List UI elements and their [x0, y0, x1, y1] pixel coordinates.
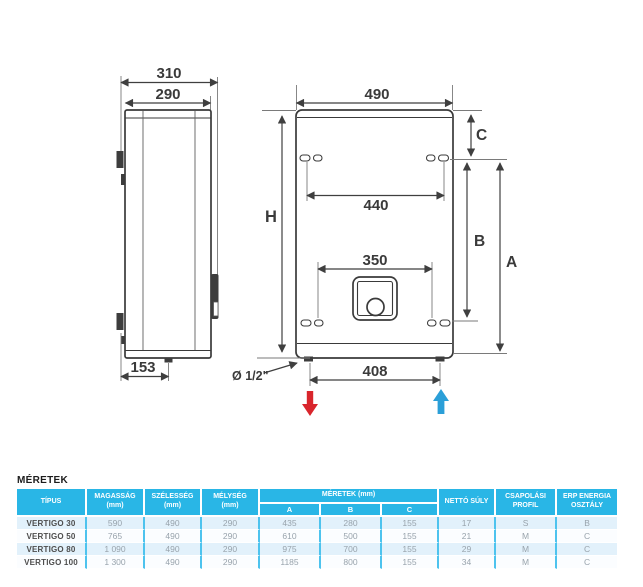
cell-csapolasi: M — [496, 530, 557, 543]
wall-bracket-upper — [117, 151, 124, 168]
front-view: 490 H — [257, 85, 517, 416]
col-header-erp: ERP ENERGIA OSZTÁLY — [557, 489, 617, 517]
dim-panel-span-label: 350 — [362, 252, 387, 269]
header-label: MAGASSÁG — [94, 493, 135, 500]
dim-b-label: B — [474, 233, 485, 250]
mount-slot — [427, 155, 436, 161]
cell-a: 610 — [260, 530, 321, 543]
header-unit: (mm) — [89, 502, 141, 511]
table-row: VERTIGO 30 590 490 290 435 280 155 17 S … — [17, 517, 617, 530]
col-header-b: B — [321, 504, 382, 517]
mount-slot — [439, 155, 449, 161]
cell-netto-suly: 17 — [439, 517, 496, 530]
cell-erp: C — [557, 543, 617, 556]
table-row: VERTIGO 100 1 300 490 290 1185 800 155 3… — [17, 556, 617, 569]
header-label: SZÉLESSÉG — [151, 493, 193, 500]
col-header-netto-suly: NETTÓ SÚLY — [439, 489, 496, 517]
mount-slot — [301, 320, 311, 326]
dim-slot-span-label: 440 — [363, 197, 388, 214]
dim-connection-span-label: 408 — [362, 363, 387, 380]
cell-erp: C — [557, 530, 617, 543]
cell-szelesseg: 490 — [145, 517, 202, 530]
cell-tipus: VERTIGO 30 — [17, 517, 87, 530]
mount-slot — [300, 155, 310, 161]
table-title: MÉRETEK — [17, 475, 618, 486]
col-header-magassag: MAGASSÁG (mm) — [87, 489, 145, 517]
red-down-arrow — [302, 391, 318, 416]
mount-slot — [428, 320, 437, 326]
cell-szelesseg: 490 — [145, 556, 202, 569]
col-header-a: A — [260, 504, 321, 517]
cell-magassag: 765 — [87, 530, 145, 543]
connection-size-label: Ø 1/2" — [232, 369, 269, 383]
cell-a: 435 — [260, 517, 321, 530]
cell-c: 155 — [382, 556, 439, 569]
dim-c-label: C — [476, 127, 487, 144]
cell-b: 280 — [321, 517, 382, 530]
cell-a: 1185 — [260, 556, 321, 569]
spec-table-section: MÉRETEK TÍPUS MAGASSÁG (mm) SZÉLESSÉG (m… — [17, 475, 618, 569]
cell-magassag: 1 300 — [87, 556, 145, 569]
col-header-szelesseg: SZÉLESSÉG (mm) — [145, 489, 202, 517]
col-header-c: C — [382, 504, 439, 517]
col-header-csapolasi: CSAPOLÁSI PROFIL — [496, 489, 557, 517]
connection-callout: Ø 1/2" — [232, 363, 297, 383]
header-label: MÉLYSÉG — [213, 493, 247, 500]
cell-melyseg: 290 — [202, 556, 260, 569]
mount-slot — [314, 155, 323, 161]
dim-height-label: H — [265, 208, 277, 226]
cell-melyseg: 290 — [202, 530, 260, 543]
cell-magassag: 590 — [87, 517, 145, 530]
dimension-drawing: 310 290 153 Ø 1/2" — [0, 0, 643, 470]
dim-a-label: A — [506, 254, 517, 271]
dim-depth-overall-label: 310 — [156, 65, 181, 82]
wall-bracket-lower — [117, 313, 124, 330]
cell-magassag: 1 090 — [87, 543, 145, 556]
cell-csapolasi: S — [496, 517, 557, 530]
cell-erp: C — [557, 556, 617, 569]
col-header-meretek: MÉRETEK (mm) — [260, 489, 439, 504]
cell-szelesseg: 490 — [145, 543, 202, 556]
cell-c: 155 — [382, 543, 439, 556]
header-unit: (mm) — [147, 502, 198, 511]
blue-up-arrow — [433, 389, 449, 414]
mount-slot — [315, 320, 324, 326]
side-view: 310 290 153 — [117, 65, 219, 381]
cell-netto-suly: 34 — [439, 556, 496, 569]
cell-erp: B — [557, 517, 617, 530]
callout-arrow — [264, 363, 297, 373]
datasheet-page: 310 290 153 Ø 1/2" — [0, 0, 643, 587]
cell-melyseg: 290 — [202, 517, 260, 530]
cell-tipus: VERTIGO 100 — [17, 556, 87, 569]
cell-netto-suly: 21 — [439, 530, 496, 543]
table-row: VERTIGO 50 765 490 290 610 500 155 21 M … — [17, 530, 617, 543]
cell-b: 500 — [321, 530, 382, 543]
knob-side-profile — [214, 302, 219, 316]
cell-szelesseg: 490 — [145, 530, 202, 543]
cell-tipus: VERTIGO 80 — [17, 543, 87, 556]
cell-csapolasi: M — [496, 556, 557, 569]
cell-b: 700 — [321, 543, 382, 556]
dim-bracket-offset-label: 153 — [130, 359, 155, 376]
spec-table: TÍPUS MAGASSÁG (mm) SZÉLESSÉG (mm) MÉLYS… — [17, 489, 617, 569]
inlet-pipe-stub — [436, 357, 445, 362]
cell-a: 975 — [260, 543, 321, 556]
dim-depth-body-label: 290 — [155, 86, 180, 103]
col-header-tipus: TÍPUS — [17, 489, 87, 517]
bracket-hook-lower — [121, 336, 125, 344]
header-unit: (mm) — [204, 502, 256, 511]
mount-slot — [440, 320, 450, 326]
dim-width-label: 490 — [364, 86, 389, 103]
cell-melyseg: 290 — [202, 543, 260, 556]
cell-c: 155 — [382, 517, 439, 530]
cell-csapolasi: M — [496, 543, 557, 556]
side-body-outline — [125, 110, 211, 358]
cell-tipus: VERTIGO 50 — [17, 530, 87, 543]
pipe-stub-side — [165, 358, 173, 363]
cell-netto-suly: 29 — [439, 543, 496, 556]
bracket-hook-upper — [121, 174, 125, 185]
col-header-melyseg: MÉLYSÉG (mm) — [202, 489, 260, 517]
control-knob — [367, 299, 384, 316]
cell-b: 800 — [321, 556, 382, 569]
cell-c: 155 — [382, 530, 439, 543]
outlet-pipe-stub — [304, 357, 313, 362]
table-row: VERTIGO 80 1 090 490 290 975 700 155 29 … — [17, 543, 617, 556]
